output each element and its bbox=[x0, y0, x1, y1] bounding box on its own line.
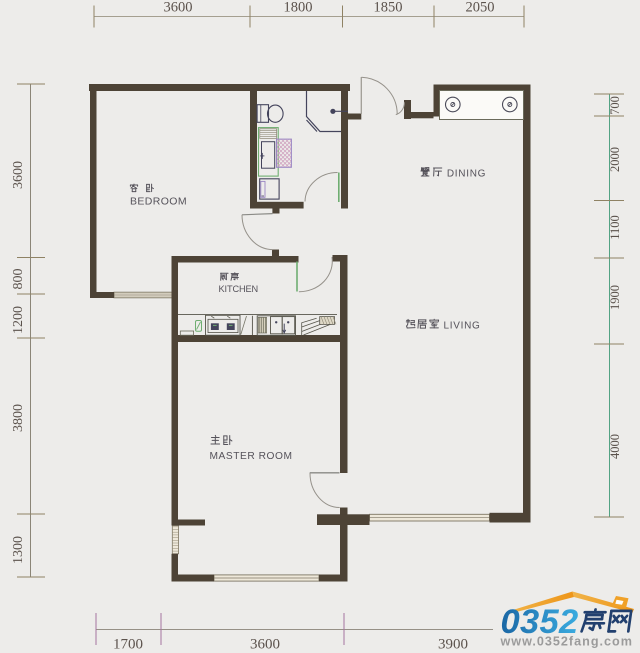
svg-text:3600: 3600 bbox=[11, 161, 26, 189]
svg-text:1900: 1900 bbox=[608, 285, 622, 310]
svg-text:1200: 1200 bbox=[11, 306, 26, 334]
svg-text:MASTER ROOM: MASTER ROOM bbox=[209, 451, 292, 462]
svg-text:LIVING: LIVING bbox=[444, 321, 481, 332]
svg-text:1300: 1300 bbox=[11, 536, 26, 564]
svg-text:1700: 1700 bbox=[113, 637, 143, 653]
svg-text:2000: 2000 bbox=[608, 147, 622, 172]
svg-text:3600: 3600 bbox=[250, 637, 280, 653]
svg-text:3600: 3600 bbox=[164, 0, 193, 16]
svg-text:3900: 3900 bbox=[438, 637, 468, 653]
svg-text:4000: 4000 bbox=[608, 434, 622, 459]
svg-text:700: 700 bbox=[608, 96, 622, 115]
svg-text:1850: 1850 bbox=[374, 0, 403, 16]
svg-text:www.0352fang.com: www.0352fang.com bbox=[500, 635, 633, 649]
svg-text:KITCHEN: KITCHEN bbox=[218, 284, 258, 294]
svg-text:DINING: DINING bbox=[447, 169, 486, 180]
svg-text:2050: 2050 bbox=[466, 0, 495, 16]
svg-text:3800: 3800 bbox=[11, 404, 26, 432]
svg-text:1100: 1100 bbox=[608, 215, 622, 240]
svg-text:800: 800 bbox=[11, 269, 26, 290]
svg-text:BEDROOM: BEDROOM bbox=[130, 196, 187, 208]
svg-text:1800: 1800 bbox=[284, 0, 313, 16]
